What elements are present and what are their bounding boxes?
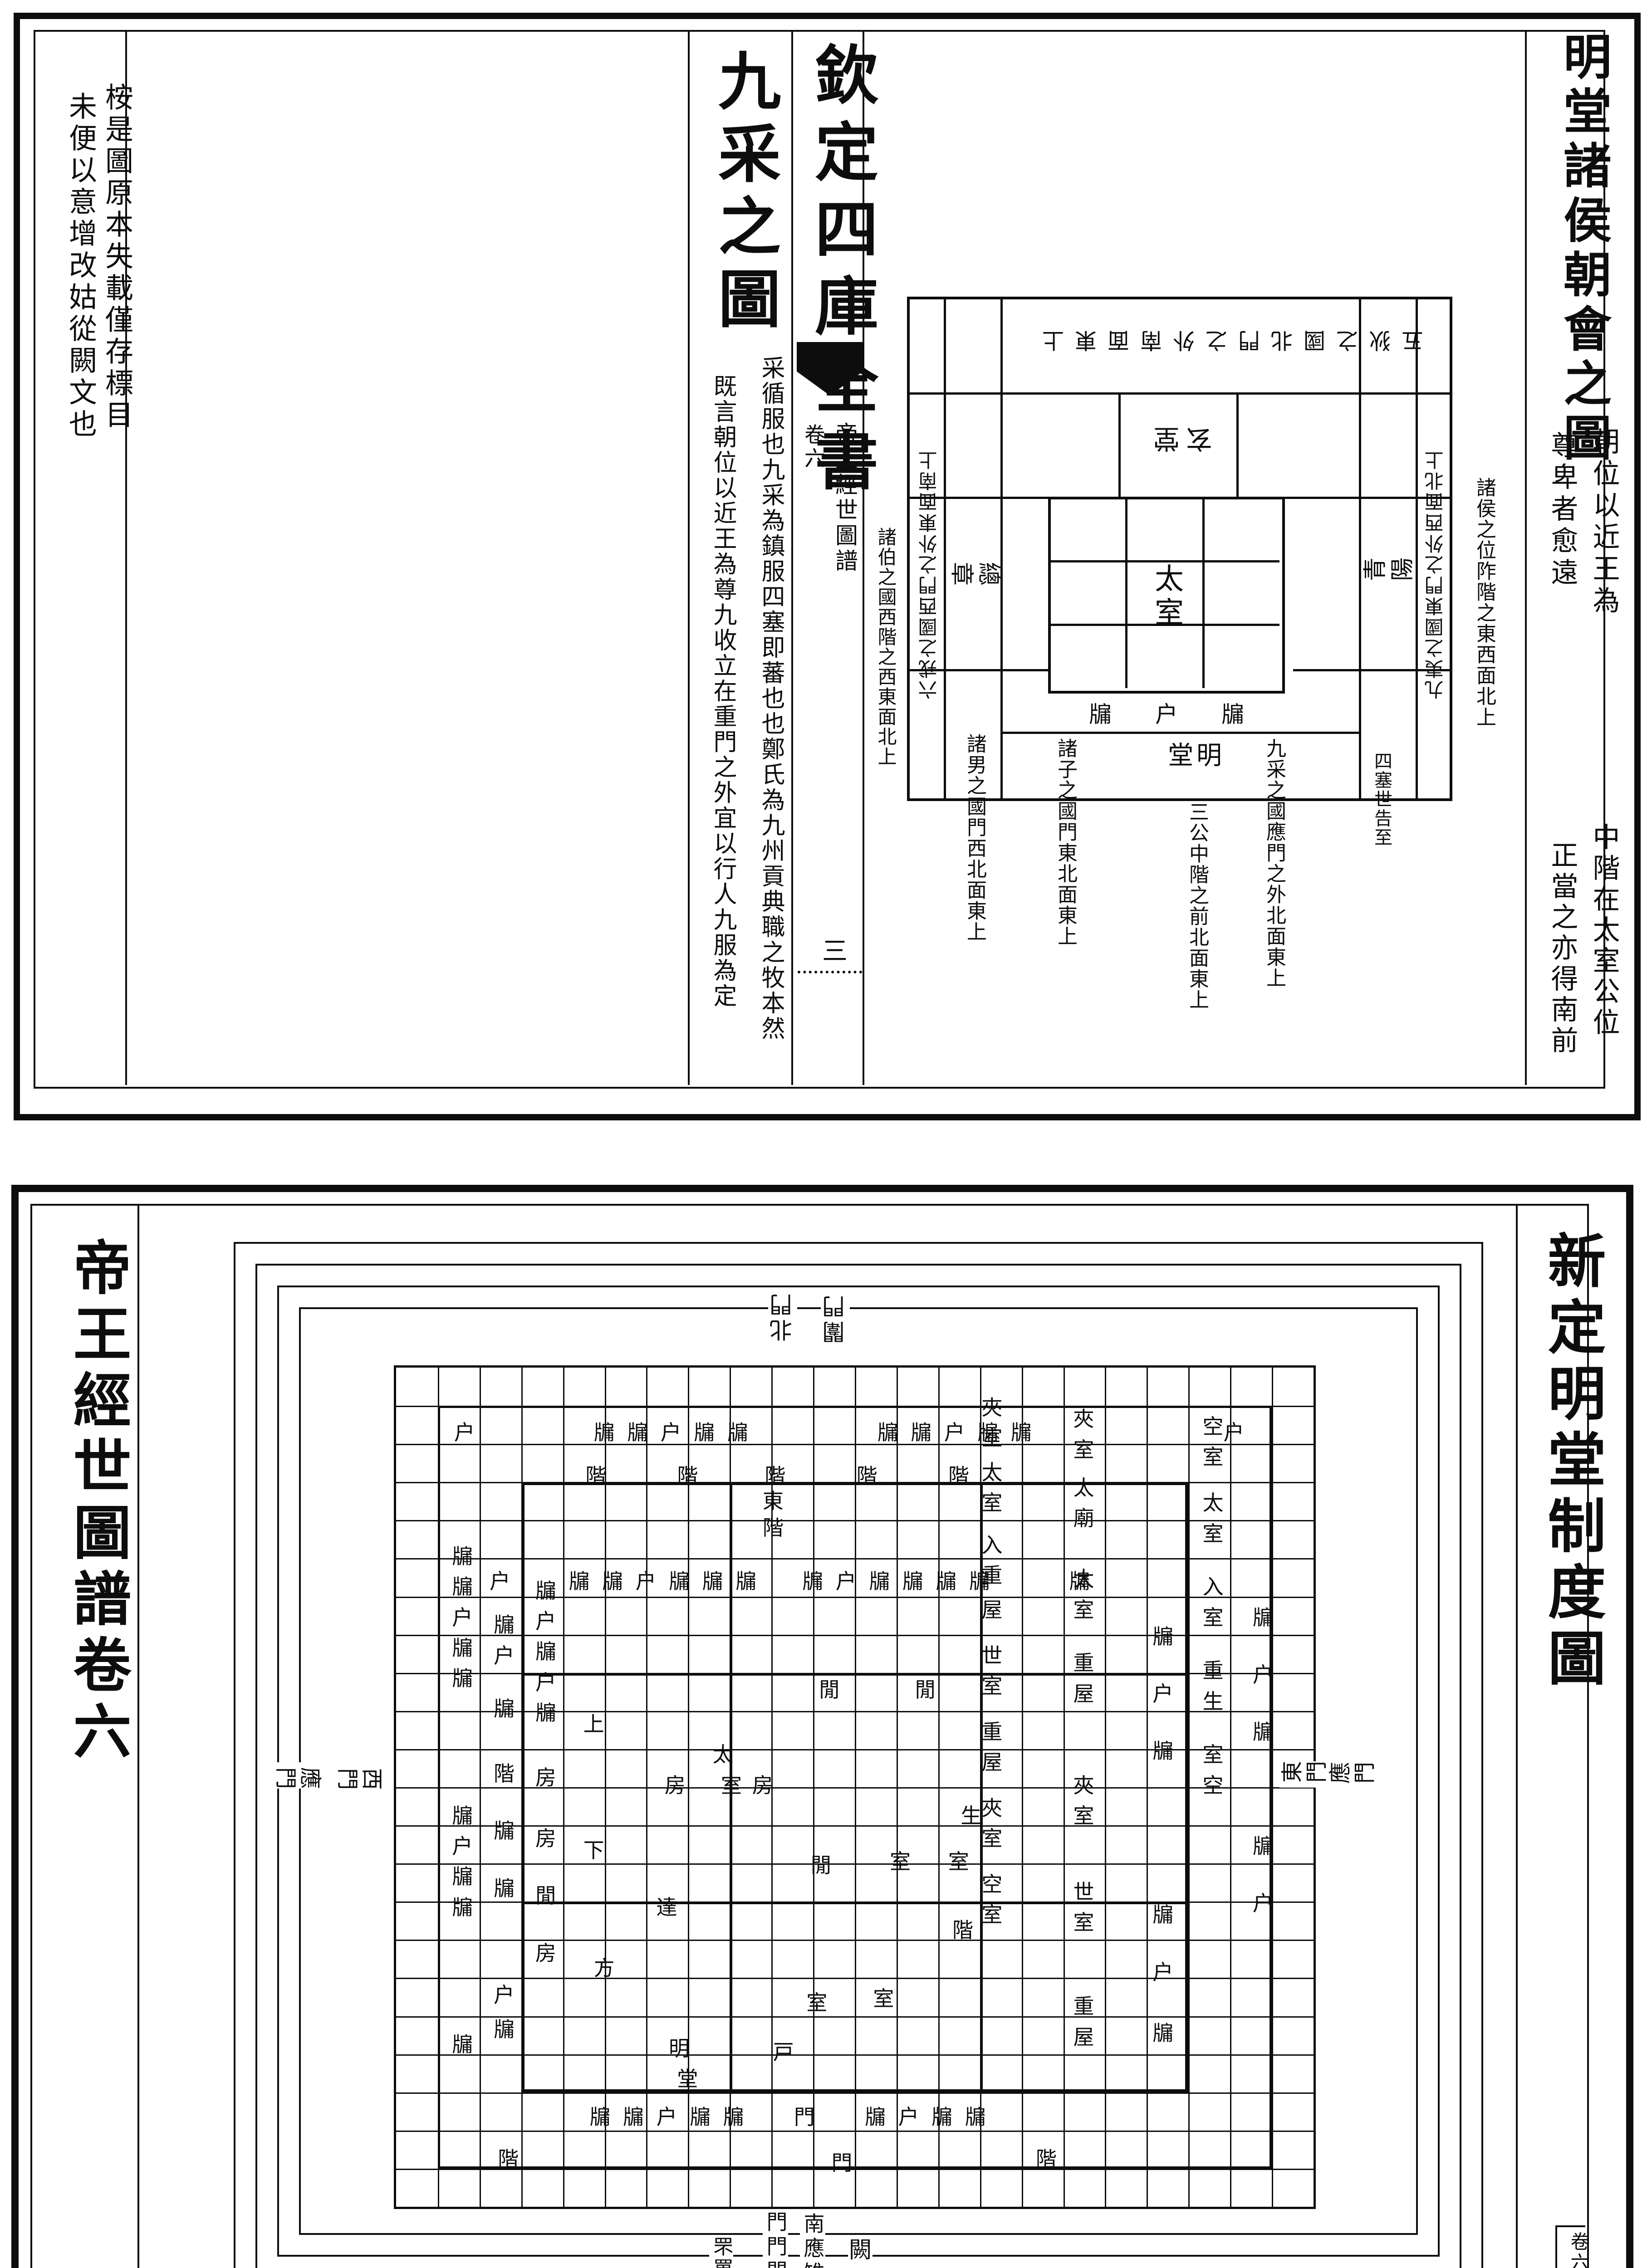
grid-cell-mark: 門 [784, 2096, 825, 2135]
grid-hline [396, 1482, 1314, 1483]
north-hall-label: 玄堂 [1141, 422, 1218, 460]
grid-cell-mark: 牖 [1142, 2012, 1183, 2051]
north-gate-1: 北門 [768, 1289, 797, 1344]
grid-cell-mark: 室 [971, 1665, 1012, 1704]
lower-right-title: 新定明堂制度圖 [1529, 1231, 1613, 1694]
grid-cell-mark: 上 [574, 1703, 614, 1742]
grid-hline [396, 1444, 1314, 1445]
grid-cell-mark: 牖 [1243, 1711, 1284, 1750]
right-note-4: 正當之亦得南前 [1543, 841, 1582, 1057]
grid-cell-mark: 牖 [725, 1560, 766, 1599]
grid-cell-mark: 户 [1142, 1673, 1183, 1712]
grid-hline [396, 1901, 1314, 1903]
grid-cell-mark: 室 [1064, 1901, 1104, 1941]
grid-hline [396, 2092, 1314, 2094]
grid-hline [396, 1825, 1314, 1827]
grid-hline [396, 2016, 1314, 2018]
corner-volume: 卷六 [1565, 2232, 1593, 2268]
rule [688, 30, 690, 1085]
grid-hline [396, 1787, 1314, 1789]
grid-cell-mark: 牖 [1243, 1597, 1284, 1636]
south-left-screen: 罘罳 [709, 2235, 733, 2268]
grid-cell-mark: 室 [1064, 1795, 1104, 1834]
grid-cell-mark: 室 [1192, 1597, 1233, 1636]
east-outer-gate: 應門 [1328, 1762, 1378, 1789]
grid-cell-mark: 户 [484, 1635, 524, 1674]
south-gate-names: 南應雉 [800, 2212, 825, 2268]
grid-cell-mark: 房 [525, 1757, 566, 1796]
upper-page: 桉是圖原本失載僅存標目 未便以意增改姑從闕文也 九采之圖 采循服也九采為鎮服四塞… [14, 13, 1641, 1120]
grid-cell-mark: 室 [971, 1417, 1012, 1456]
spine-page-number: 三 [822, 931, 848, 968]
grid-cell-mark: 牖 [484, 1867, 524, 1906]
grid-hline [396, 1711, 1314, 1712]
west-strip-label: 六戎之國西門之外東面南上 [915, 449, 943, 699]
grid-hline [396, 2131, 1314, 2132]
grid-cell-mark: 房 [525, 1932, 566, 1971]
north-gate-2: 闈門 [821, 1291, 850, 1345]
grid-hline [396, 1978, 1314, 1979]
grid-cell-mark: 空 [1192, 1765, 1233, 1804]
below-col-1: 諸男之國門西北面東上 [960, 733, 989, 942]
south-right-tower: 闕 [848, 2236, 873, 2263]
right-note-3: 中階在太室公位 [1584, 823, 1624, 1039]
figure-note-right: 采循服也九采為鎮服四塞即蕃也也鄭氏為九州貢典職之牧本然 [754, 356, 788, 1041]
grid-cell-mark: 牖 [1243, 1825, 1284, 1864]
corner-box-line [1555, 2225, 1557, 2268]
grid-cell-mark: 牖 [484, 2009, 524, 2048]
grid-cell-mark: 閒 [809, 1669, 850, 1708]
grid-hline [396, 1558, 1314, 1559]
outside-left-col: 諸伯之國西階之西東面北上 [872, 527, 900, 767]
grid-cell-mark: 室 [1192, 1436, 1233, 1475]
north-band-label: 五狄之國北門之外南面東上 [1023, 327, 1431, 358]
grid-cell-mark: 屋 [1064, 1673, 1104, 1712]
marginal-note-col-right: 桉是圖原本失載僅存標目 [96, 83, 137, 432]
grid-cell-mark: 生 [1192, 1681, 1233, 1720]
east-inner-gate: 東門 [1279, 1761, 1330, 1788]
grid-cell-mark: 牖 [484, 1810, 524, 1849]
east-hall-label: 青陽 [1363, 555, 1417, 589]
grid-cell-mark: 屋 [1064, 2016, 1104, 2055]
grid-cell-mark: 室 [1192, 1513, 1233, 1552]
grid-hline [396, 1520, 1314, 1521]
page-title: 明堂諸侯朝會之圖 [1548, 32, 1618, 467]
grid-hline [396, 1635, 1314, 1636]
grid-cell-mark: 牖 [442, 1887, 483, 1926]
grid-cell-mark: 閒 [525, 1875, 566, 1914]
grid-cell-mark: 室 [971, 1818, 1012, 1857]
grid-cell-mark: 階 [484, 1753, 524, 1792]
grid-cell-mark: 室 [971, 1894, 1012, 1933]
outside-right-col: 諸侯之位阼階之東西面北上 [1470, 477, 1499, 728]
grid-cell-mark: 屋 [971, 1741, 1012, 1780]
grid-cell-mark: 室 [880, 1841, 921, 1880]
grid-cell-mark: 室 [971, 1482, 1012, 1521]
grid-hline [396, 1749, 1314, 1750]
rule [1516, 1204, 1518, 2268]
grid-hline [396, 2169, 1314, 2170]
rule [1525, 30, 1527, 1085]
grid-cell-mark: 戸 [763, 2031, 804, 2070]
grid-cell-mark: 室 [1064, 1429, 1104, 1468]
right-note-2: 尊卑者愈遠 [1543, 431, 1582, 590]
spine-dotted-line [798, 971, 862, 973]
corner-box-line [1555, 2225, 1585, 2227]
grid-hline [396, 1940, 1314, 1941]
grid-hline [396, 1406, 1314, 1407]
grid-cell-mark: 牖 [442, 1657, 483, 1696]
grid-cell-mark: 室 [1064, 1589, 1104, 1628]
below-col-3: 三公中階之前北面東上 [1182, 802, 1211, 1010]
court-assembly-diagram: 五狄之國北門之外南面東上 玄堂 六戎之國西門之外東面南上 九夷之國東門之外西面北… [907, 297, 1452, 801]
marginal-note-col-left: 未便以意增改姑從闕文也 [60, 92, 101, 441]
grid-cell-mark: 牖 [955, 2096, 996, 2135]
west-outer-gate: 應門 [272, 1762, 323, 1789]
right-note-1: 朝位以近王為 [1584, 427, 1624, 618]
window-door-row: 牖户牖 [1089, 696, 1288, 729]
grid-hline [396, 2054, 1314, 2056]
grid-cell-mark: 房 [525, 1818, 566, 1857]
grid-cell-mark: 階 [1026, 2138, 1067, 2177]
south-gate-doors: 門門門 [763, 2210, 788, 2268]
grid-cell-mark: 達 [646, 1887, 687, 1926]
grid-cell-mark: 户 [484, 1974, 524, 2013]
grid-hline [396, 1673, 1314, 1674]
grid-cell-mark: 牖 [713, 2096, 754, 2135]
grid-cell-mark: 屋 [971, 1589, 1012, 1628]
hall-plan-grid: 户牖牖户牖牖牖牖户牖牖户階階階階階東階牖牖户牖牖牖牖户牖牖牖牖户牖牖牖户牖牖牖户… [394, 1365, 1316, 2209]
grid-cell-mark: 牖 [1142, 1894, 1183, 1933]
lower-left-title: 帝王經世圖譜卷六 [55, 1237, 139, 1767]
grid-cell-mark: 户 [1142, 1951, 1183, 1990]
below-col-4: 九采之國應門之外北面東上 [1260, 738, 1289, 988]
grid-hline [396, 1597, 1314, 1598]
grid-cell-mark: 階 [847, 1455, 887, 1494]
figure-title: 九采之圖 [698, 49, 789, 339]
grid-cell-mark: 階 [575, 1455, 616, 1494]
spine-volume: 卷六 [799, 424, 828, 471]
grid-cell-mark: 户 [480, 1560, 520, 1599]
grid-cell-mark: 室 [796, 1982, 837, 2021]
below-col-2: 諸子之國門東北面東上 [1051, 738, 1080, 947]
grid-cell-mark: 牖 [484, 1688, 524, 1727]
rule [791, 30, 793, 1085]
center-room-label: 太室 [1146, 563, 1187, 631]
grid-cell-mark: 重 [971, 1554, 1012, 1593]
grid-cell-mark: 廟 [1064, 1497, 1104, 1536]
lower-page: 帝王經世圖譜卷六 新定明堂制度圖 卷六 四 户牖牖户牖牖牖牖户牖牖户階階階階 [11, 1185, 1633, 2268]
west-inner-gate: 西門 [334, 1763, 385, 1789]
grid-cell-mark: 房 [742, 1765, 783, 1804]
grid-cell-mark: 階 [753, 1507, 794, 1546]
east-strip-label: 九夷之國東門之外西面北上 [1422, 449, 1449, 699]
grid-cell-mark: 下 [574, 1829, 614, 1868]
figure-note-left: 既言朝位以近王為尊九收立在重門之外宜以行人九服為定 [706, 374, 740, 1009]
below-col-5: 四塞世告至 [1368, 752, 1395, 847]
scanned-folio: 桉是圖原本失載僅存標目 未便以意增改姑從闕文也 九采之圖 采循服也九采為鎮服四塞… [0, 0, 1647, 2268]
grid-hline [396, 1863, 1314, 1865]
west-hall-label: 總章 [947, 555, 1002, 589]
south-hall-label: 明堂 [1164, 742, 1221, 798]
grid-cell-mark: 牖 [442, 2024, 483, 2063]
spine-book-title: 帝王經世圖譜 [828, 422, 861, 574]
